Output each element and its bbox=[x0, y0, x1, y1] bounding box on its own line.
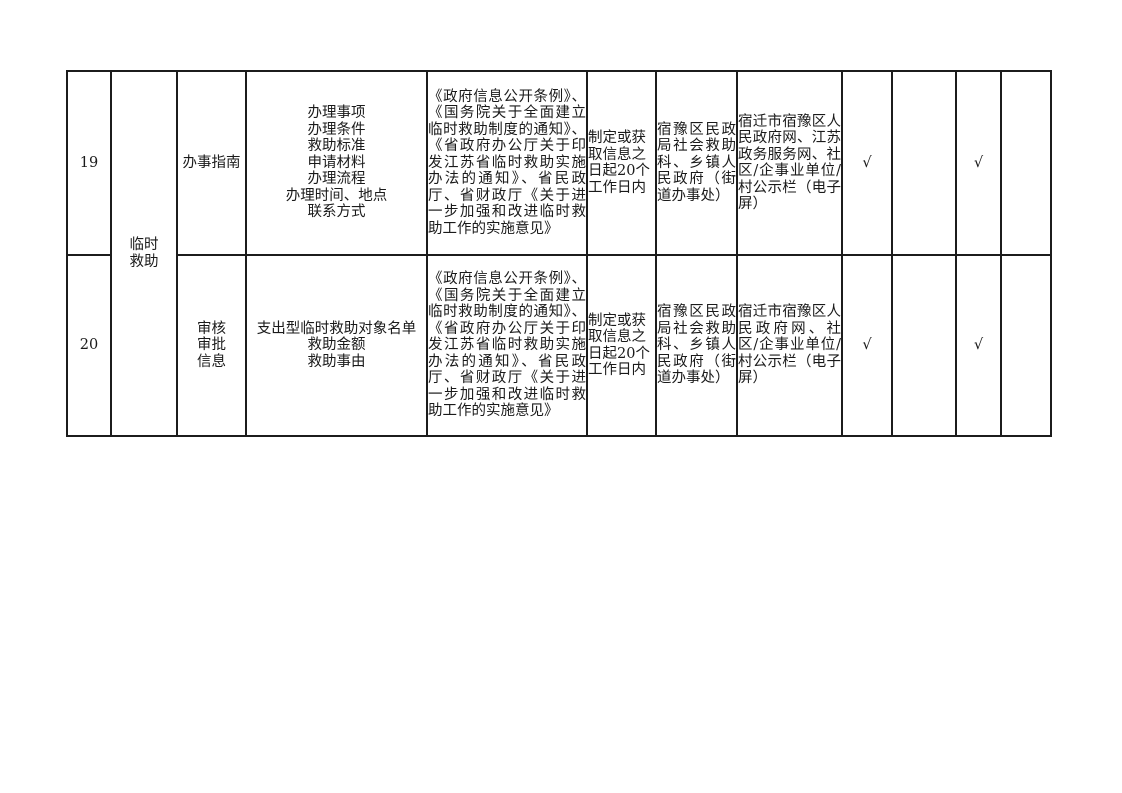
channel-cell: 宿迁市宿豫区人民政府网、江苏政务服务网、社区/企事业单位/村公示栏（电子屏） bbox=[737, 71, 842, 255]
check-cell bbox=[892, 71, 956, 255]
basis-cell: 《政府信息公开条例》、《国务院关于全面建立临时救助制度的通知》、《省政府办公厅关… bbox=[427, 71, 587, 255]
channel-cell: 宿迁市宿豫区人民政府网、社区/企事业单位/村公示栏（电子屏） bbox=[737, 255, 842, 436]
subject-cell: 宿豫区民政局社会救助科、乡镇人民政府（街道办事处） bbox=[656, 71, 737, 255]
check-cell: √ bbox=[842, 255, 892, 436]
item-cell: 审核 审批 信息 bbox=[177, 255, 246, 436]
category-cell: 临时 救助 bbox=[111, 71, 177, 436]
check-cell bbox=[1001, 255, 1051, 436]
content-cell: 支出型临时救助对象名单 救助金额 救助事由 bbox=[246, 255, 427, 436]
table-row-19: 19 临时 救助 办事指南 办理事项 办理条件 救助标准 申请材料 办理流程 办… bbox=[67, 71, 1051, 255]
table-row-20: 20 审核 审批 信息 支出型临时救助对象名单 救助金额 救助事由 《政府信息公… bbox=[67, 255, 1051, 436]
time-limit-cell: 制定或获取信息之日起20个工作日内 bbox=[587, 71, 656, 255]
seq-cell: 20 bbox=[67, 255, 111, 436]
check-cell bbox=[1001, 71, 1051, 255]
time-limit-cell: 制定或获取信息之日起20个工作日内 bbox=[587, 255, 656, 436]
check-cell bbox=[892, 255, 956, 436]
disclosure-table: 19 临时 救助 办事指南 办理事项 办理条件 救助标准 申请材料 办理流程 办… bbox=[66, 70, 1052, 437]
basis-cell: 《政府信息公开条例》、《国务院关于全面建立临时救助制度的通知》、《省政府办公厅关… bbox=[427, 255, 587, 436]
seq-cell: 19 bbox=[67, 71, 111, 255]
item-cell: 办事指南 bbox=[177, 71, 246, 255]
subject-cell: 宿豫区民政局社会救助科、乡镇人民政府（街道办事处） bbox=[656, 255, 737, 436]
document-page: 19 临时 救助 办事指南 办理事项 办理条件 救助标准 申请材料 办理流程 办… bbox=[0, 0, 1122, 793]
content-cell: 办理事项 办理条件 救助标准 申请材料 办理流程 办理时间、地点 联系方式 bbox=[246, 71, 427, 255]
check-cell: √ bbox=[956, 71, 1001, 255]
check-cell: √ bbox=[842, 71, 892, 255]
check-cell: √ bbox=[956, 255, 1001, 436]
